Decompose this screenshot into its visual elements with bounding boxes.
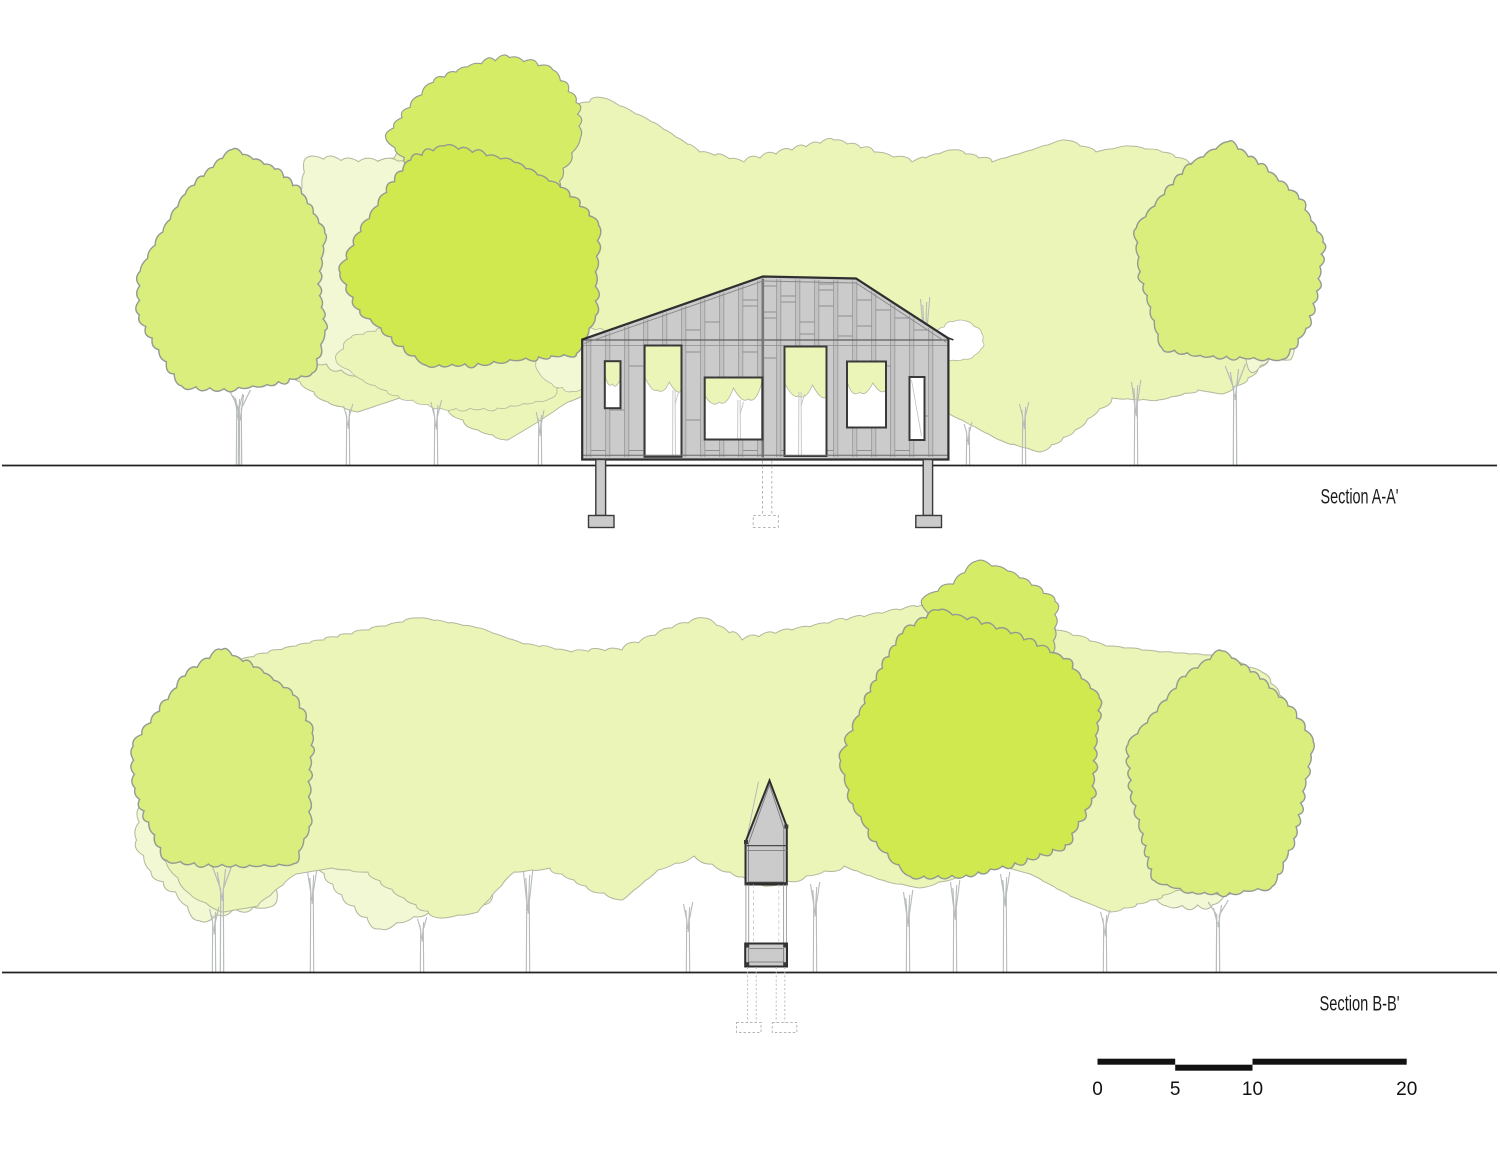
svg-text:20: 20 — [1396, 1079, 1417, 1100]
svg-text:Section B-B': Section B-B' — [1320, 993, 1400, 1016]
svg-text:5: 5 — [1170, 1079, 1181, 1100]
svg-text:Section A-A': Section A-A' — [1321, 486, 1399, 509]
svg-text:10: 10 — [1242, 1079, 1263, 1100]
svg-text:0: 0 — [1092, 1079, 1103, 1100]
